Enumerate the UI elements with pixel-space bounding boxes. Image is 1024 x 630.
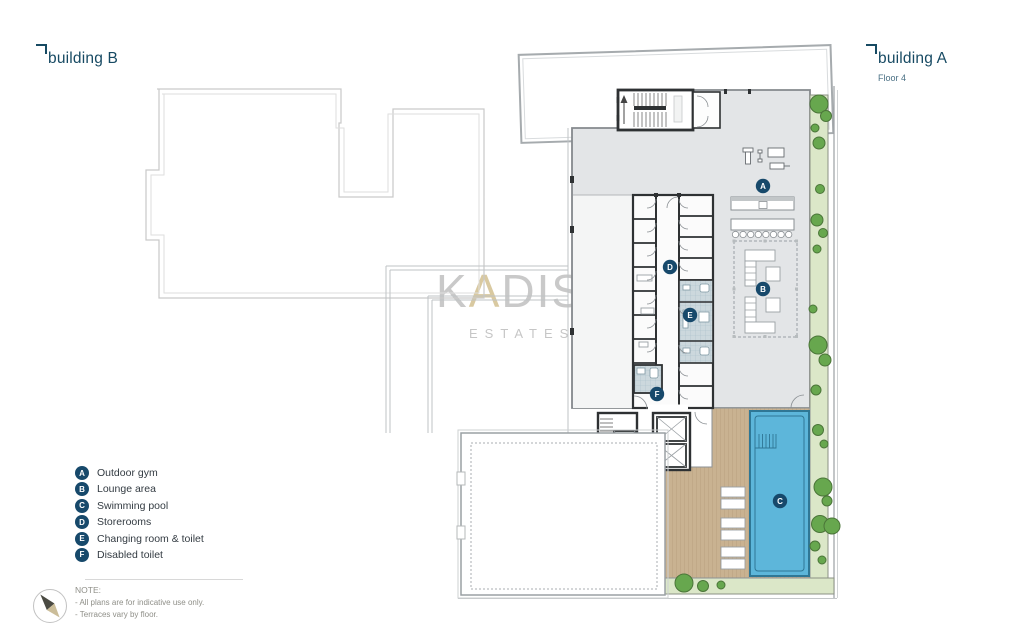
legend-label: Disabled toilet xyxy=(97,549,163,561)
legend-badge-c: C xyxy=(75,499,89,513)
building-a-plan: A B C D E F xyxy=(386,45,840,598)
legend-badge-a: A xyxy=(75,466,89,480)
note-title: NOTE: xyxy=(75,585,204,595)
legend-item-swimming-pool: C Swimming pool xyxy=(75,499,204,513)
svg-text:D: D xyxy=(667,263,673,272)
swimming-pool xyxy=(750,411,809,576)
svg-text:E: E xyxy=(687,311,693,320)
legend-label: Lounge area xyxy=(97,483,156,495)
marker-storerooms: D xyxy=(663,260,677,274)
toilet-icon xyxy=(650,368,658,378)
terrace-edge-lines xyxy=(386,128,568,433)
legend: A Outdoor gym B Lounge area C Swimming p… xyxy=(75,466,204,564)
building-a-label: building A xyxy=(878,50,947,68)
svg-text:F: F xyxy=(655,390,660,399)
stair-vestibule xyxy=(693,92,720,128)
note-block: NOTE: - All plans are for indicative use… xyxy=(75,585,204,620)
legend-item-outdoor-gym: A Outdoor gym xyxy=(75,466,204,480)
marker-changing-room: E xyxy=(683,308,697,322)
legend-item-disabled-toilet: F Disabled toilet xyxy=(75,548,204,562)
legend-label: Outdoor gym xyxy=(97,467,158,479)
legend-label: Storerooms xyxy=(97,516,151,528)
legend-badge-e: E xyxy=(75,532,89,546)
toilet-icon xyxy=(700,347,709,355)
legend-badge-f: F xyxy=(75,548,89,562)
note-line: - Terraces vary by floor. xyxy=(75,609,204,621)
corner-bracket-icon xyxy=(866,44,877,54)
marker-lounge-area: B xyxy=(756,282,770,296)
shower-icon xyxy=(699,312,709,322)
floor-label: Floor 4 xyxy=(878,73,906,83)
changing-rooms xyxy=(679,280,713,363)
legend-label: Changing room & toilet xyxy=(97,533,204,545)
building-b-outline xyxy=(146,89,484,298)
building-b-label: building B xyxy=(48,50,118,68)
legend-label: Swimming pool xyxy=(97,500,168,512)
gym-bench-icon xyxy=(768,148,784,157)
legend-badge-d: D xyxy=(75,515,89,529)
service-corridor xyxy=(573,195,633,408)
floorplan-page: KADIS ESTATES xyxy=(0,0,1024,630)
svg-text:B: B xyxy=(760,285,766,294)
legend-item-storerooms: D Storerooms xyxy=(75,515,204,529)
corner-bracket-icon xyxy=(36,44,47,54)
legend-badge-b: B xyxy=(75,482,89,496)
sun-loungers xyxy=(721,487,745,569)
legend-item-changing-room: E Changing room & toilet xyxy=(75,532,204,546)
sink-icon xyxy=(683,285,690,290)
lobby-opening xyxy=(648,405,688,412)
toilet-icon xyxy=(700,284,709,292)
marker-outdoor-gym: A xyxy=(756,179,770,193)
compass-needle-icon xyxy=(30,586,70,626)
marker-swimming-pool: C xyxy=(773,494,787,508)
marker-disabled-toilet: F xyxy=(650,387,664,401)
lower-terrace xyxy=(457,430,668,598)
sink-icon xyxy=(637,368,645,374)
legend-item-lounge-area: B Lounge area xyxy=(75,482,204,496)
svg-text:A: A xyxy=(760,182,766,191)
note-line: - All plans are for indicative use only. xyxy=(75,597,204,609)
svg-text:C: C xyxy=(777,497,783,506)
note-divider xyxy=(85,579,243,580)
